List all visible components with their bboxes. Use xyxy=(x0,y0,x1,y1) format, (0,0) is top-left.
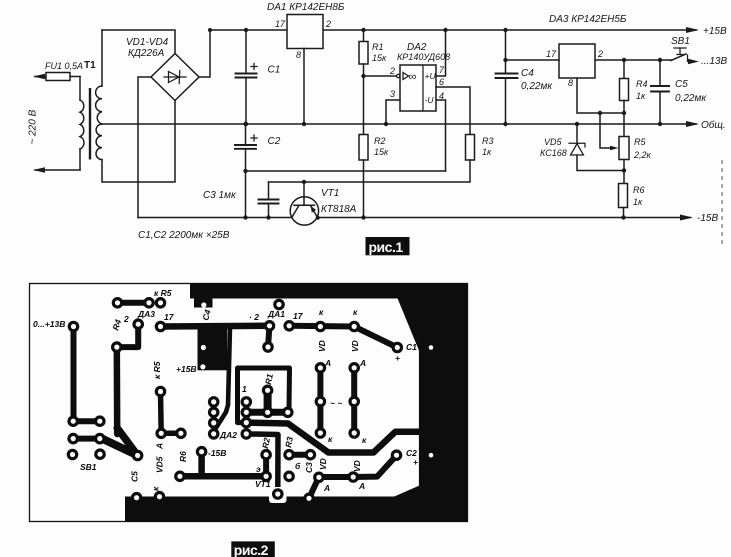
svg-text:17: 17 xyxy=(293,311,304,321)
svg-text:VT1: VT1 xyxy=(255,479,271,489)
svg-text:э: э xyxy=(256,464,261,474)
svg-text:А: А xyxy=(358,481,365,491)
svg-text:VT1: VT1 xyxy=(321,188,339,199)
svg-text:А: А xyxy=(323,483,330,493)
svg-text:R3: R3 xyxy=(283,436,295,449)
svg-text:0,22мк: 0,22мк xyxy=(675,93,707,104)
svg-text:C3: C3 xyxy=(304,462,314,473)
svg-text:· 2: · 2 xyxy=(249,312,259,322)
svg-text:1: 1 xyxy=(242,384,247,394)
svg-text:+15В: +15В xyxy=(176,364,197,374)
svg-text:R2: R2 xyxy=(374,136,386,146)
svg-text:2: 2 xyxy=(325,19,331,29)
svg-text:к R5: к R5 xyxy=(154,288,172,298)
svg-text:-15В: -15В xyxy=(208,448,226,458)
svg-text:C5: C5 xyxy=(130,471,140,482)
svg-text:R5: R5 xyxy=(634,137,646,147)
svg-text:2,2к: 2,2к xyxy=(633,150,652,160)
svg-text:R3: R3 xyxy=(482,136,494,146)
svg-text:C5: C5 xyxy=(675,79,688,90)
svg-text:КТ818А: КТ818А xyxy=(321,204,357,215)
svg-text:DA3 КР142ЕН5Б: DA3 КР142ЕН5Б xyxy=(549,14,627,25)
svg-text:А: А xyxy=(155,443,165,450)
svg-text:1к: 1к xyxy=(633,197,643,207)
svg-text:C3 1мк: C3 1мк xyxy=(203,190,237,201)
svg-text:VD: VD xyxy=(352,460,362,472)
svg-text:2: 2 xyxy=(389,66,395,76)
svg-text:+U: +U xyxy=(425,71,437,81)
svg-text:0...+13В: 0...+13В xyxy=(33,319,65,329)
svg-text:4: 4 xyxy=(439,91,444,101)
svg-text:VD5: VD5 xyxy=(544,137,563,147)
svg-text:FU1 0,5А: FU1 0,5А xyxy=(45,61,83,71)
svg-text:-U: -U xyxy=(425,95,435,105)
svg-text:15к: 15к xyxy=(372,53,387,63)
svg-text:б: б xyxy=(295,461,301,471)
svg-text:C1: C1 xyxy=(406,342,417,352)
svg-text:-15В: -15В xyxy=(697,213,718,224)
svg-text:ДА1: ДА1 xyxy=(267,309,285,319)
svg-text:к: к xyxy=(353,307,358,317)
svg-text:R6: R6 xyxy=(633,185,645,195)
svg-text:17: 17 xyxy=(546,49,557,59)
svg-text:КС168: КС168 xyxy=(540,148,567,158)
svg-text:R1: R1 xyxy=(372,42,384,52)
svg-text:R2: R2 xyxy=(260,437,272,450)
svg-text:T1: T1 xyxy=(84,60,96,71)
svg-text:А: А xyxy=(324,358,331,368)
svg-text:R6: R6 xyxy=(178,451,188,462)
svg-text:6: 6 xyxy=(439,77,444,87)
svg-text:∞: ∞ xyxy=(409,71,417,83)
svg-text:+: + xyxy=(413,457,418,467)
svg-text:к R5: к R5 xyxy=(152,361,162,379)
svg-text:3: 3 xyxy=(390,89,395,99)
svg-text:R4: R4 xyxy=(636,79,648,89)
svg-text:SB1: SB1 xyxy=(671,36,690,47)
svg-text:+15В: +15В xyxy=(703,26,727,37)
svg-text:VD5: VD5 xyxy=(155,456,165,473)
svg-text:ДА2: ДА2 xyxy=(219,430,237,440)
svg-text:C2: C2 xyxy=(268,136,281,147)
svg-text:R1: R1 xyxy=(263,373,275,386)
svg-text:КД226А: КД226А xyxy=(128,48,165,59)
svg-text:SB1: SB1 xyxy=(80,462,97,472)
svg-text:VD1-VD4: VD1-VD4 xyxy=(126,37,169,48)
svg-text:рис.2: рис.2 xyxy=(234,542,269,557)
svg-text:2: 2 xyxy=(123,314,129,324)
svg-text:VD: VD xyxy=(350,340,360,352)
svg-text:+: + xyxy=(395,353,400,363)
svg-text:...13В: ...13В xyxy=(701,56,727,67)
svg-text:~ 220 В: ~ 220 В xyxy=(28,109,39,144)
svg-text:КР140УД608: КР140УД608 xyxy=(397,52,450,62)
svg-text:VD: VD xyxy=(317,340,327,352)
svg-text:17: 17 xyxy=(275,19,286,29)
svg-text:8: 8 xyxy=(296,50,301,60)
svg-text:VD: VD xyxy=(318,458,328,470)
svg-text:17: 17 xyxy=(164,312,175,322)
svg-text:~ ~: ~ ~ xyxy=(330,398,342,408)
svg-text:ДА3: ДА3 xyxy=(137,309,155,319)
svg-text:2: 2 xyxy=(597,49,603,59)
svg-text:C4: C4 xyxy=(521,68,534,79)
svg-text:1к: 1к xyxy=(636,91,646,101)
svg-text:C1,C2 2200мк ×25В: C1,C2 2200мк ×25В xyxy=(138,230,230,241)
svg-text:к: к xyxy=(151,486,161,491)
svg-text:к: к xyxy=(319,307,324,317)
svg-text:C1: C1 xyxy=(268,65,281,76)
svg-text:0,22мк: 0,22мк xyxy=(521,81,553,92)
svg-text:8: 8 xyxy=(568,78,573,88)
svg-text:рис.1: рис.1 xyxy=(369,239,404,255)
svg-text:к: к xyxy=(362,435,367,445)
svg-text:Общ.: Общ. xyxy=(701,119,726,131)
svg-text:А: А xyxy=(359,358,366,368)
svg-text:к: к xyxy=(328,434,333,444)
svg-text:DA1 КР142ЕН8Б: DA1 КР142ЕН8Б xyxy=(267,2,345,13)
svg-text:1к: 1к xyxy=(482,147,492,157)
svg-text:7: 7 xyxy=(439,65,445,75)
svg-text:15к: 15к xyxy=(374,147,389,157)
